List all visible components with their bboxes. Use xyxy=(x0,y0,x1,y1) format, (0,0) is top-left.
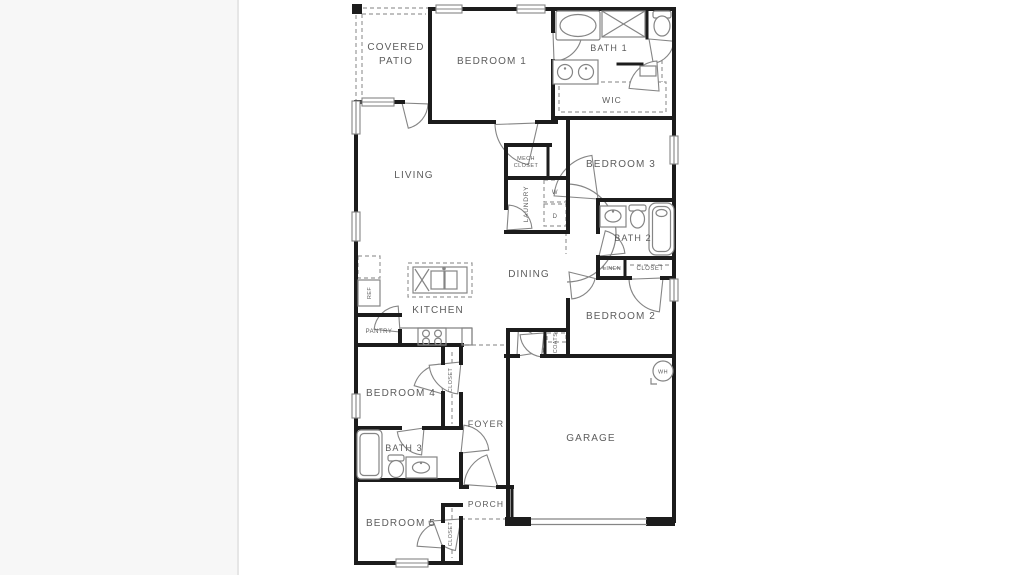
window xyxy=(396,559,428,567)
patio-post xyxy=(352,4,362,14)
room-label-bedroom2: BEDROOM 2 xyxy=(586,311,656,322)
window xyxy=(670,279,678,301)
room-label-living: LIVING xyxy=(394,170,433,181)
window xyxy=(352,212,360,241)
room-label-kitchen: KITCHEN xyxy=(412,305,464,316)
room-label-bedroom3: BEDROOM 3 xyxy=(586,159,656,170)
toilet-1 xyxy=(653,11,671,36)
floor-plan-page: COVERED PATIO BEDROOM 1 BATH 1 WIC LIVIN… xyxy=(0,0,1024,575)
garage-door-post-right xyxy=(646,517,675,526)
window xyxy=(362,98,394,106)
room-label-covered-patio: PATIO xyxy=(379,56,413,67)
room-label-bedroom5: BEDROOM 5 xyxy=(366,518,436,529)
room-label-closet-bedroom4: CLOSET xyxy=(448,368,454,393)
range xyxy=(400,328,472,345)
room-label-pantry: PANTRY xyxy=(366,329,393,335)
room-label-closet-bedroom5: CLOSET xyxy=(448,522,454,547)
vanity-2 xyxy=(600,206,626,227)
fixtures xyxy=(357,11,674,479)
bathtub-1 xyxy=(556,11,600,40)
window xyxy=(436,5,462,13)
dryer-label: D xyxy=(553,214,558,220)
bath1-shelf xyxy=(640,66,656,76)
room-label-foyer: FOYER xyxy=(468,419,505,429)
kitchen-island xyxy=(413,267,467,293)
bathtub-2 xyxy=(649,203,674,255)
toilet-2 xyxy=(629,205,646,228)
water-heater-label: WH xyxy=(658,370,668,376)
windows xyxy=(352,5,678,567)
room-label-bath1: BATH 1 xyxy=(590,43,627,53)
room-label-mech-closet: CLOSET xyxy=(514,163,539,169)
room-label-linen: LINEN xyxy=(603,266,621,272)
room-label-mech-closet: MECH xyxy=(517,156,535,162)
door-swing xyxy=(402,103,428,128)
shower-1 xyxy=(602,11,645,37)
room-label-covered-patio: COVERED xyxy=(367,42,424,53)
door-swing xyxy=(649,39,674,64)
room-label-coats: COATS xyxy=(553,333,559,354)
washer-label: W xyxy=(552,190,558,196)
door-swing xyxy=(464,455,498,487)
room-label-wic: WIC xyxy=(602,95,622,105)
room-label-bedroom4: BEDROOM 4 xyxy=(366,388,436,399)
window xyxy=(670,136,678,164)
garage-door-post-left xyxy=(505,517,531,526)
room-label-closet-bedroom2: CLOSET xyxy=(636,266,663,272)
room-label-garage: GARAGE xyxy=(566,433,615,444)
room-label-porch: PORCH xyxy=(468,499,504,509)
room-label-bath2: BATH 2 xyxy=(614,233,651,243)
window xyxy=(352,101,360,134)
room-label-bath3: BATH 3 xyxy=(385,443,422,453)
room-label-ref: REF xyxy=(367,287,373,299)
room-label-bedroom1: BEDROOM 1 xyxy=(457,56,527,67)
vanity-3 xyxy=(406,457,437,478)
toilet-3 xyxy=(388,455,404,478)
walls xyxy=(352,4,675,563)
dashed-lines xyxy=(356,8,672,558)
room-label-laundry: LAUNDRY xyxy=(523,186,530,223)
door-swing xyxy=(461,425,489,453)
room-label-dining: DINING xyxy=(508,269,550,280)
door-swing xyxy=(629,278,663,312)
floor-plan-drawing: COVERED PATIO BEDROOM 1 BATH 1 WIC LIVIN… xyxy=(0,0,1024,575)
window xyxy=(352,394,360,418)
double-vanity-1 xyxy=(553,60,598,84)
window xyxy=(517,5,545,13)
bathtub-3 xyxy=(357,430,382,479)
